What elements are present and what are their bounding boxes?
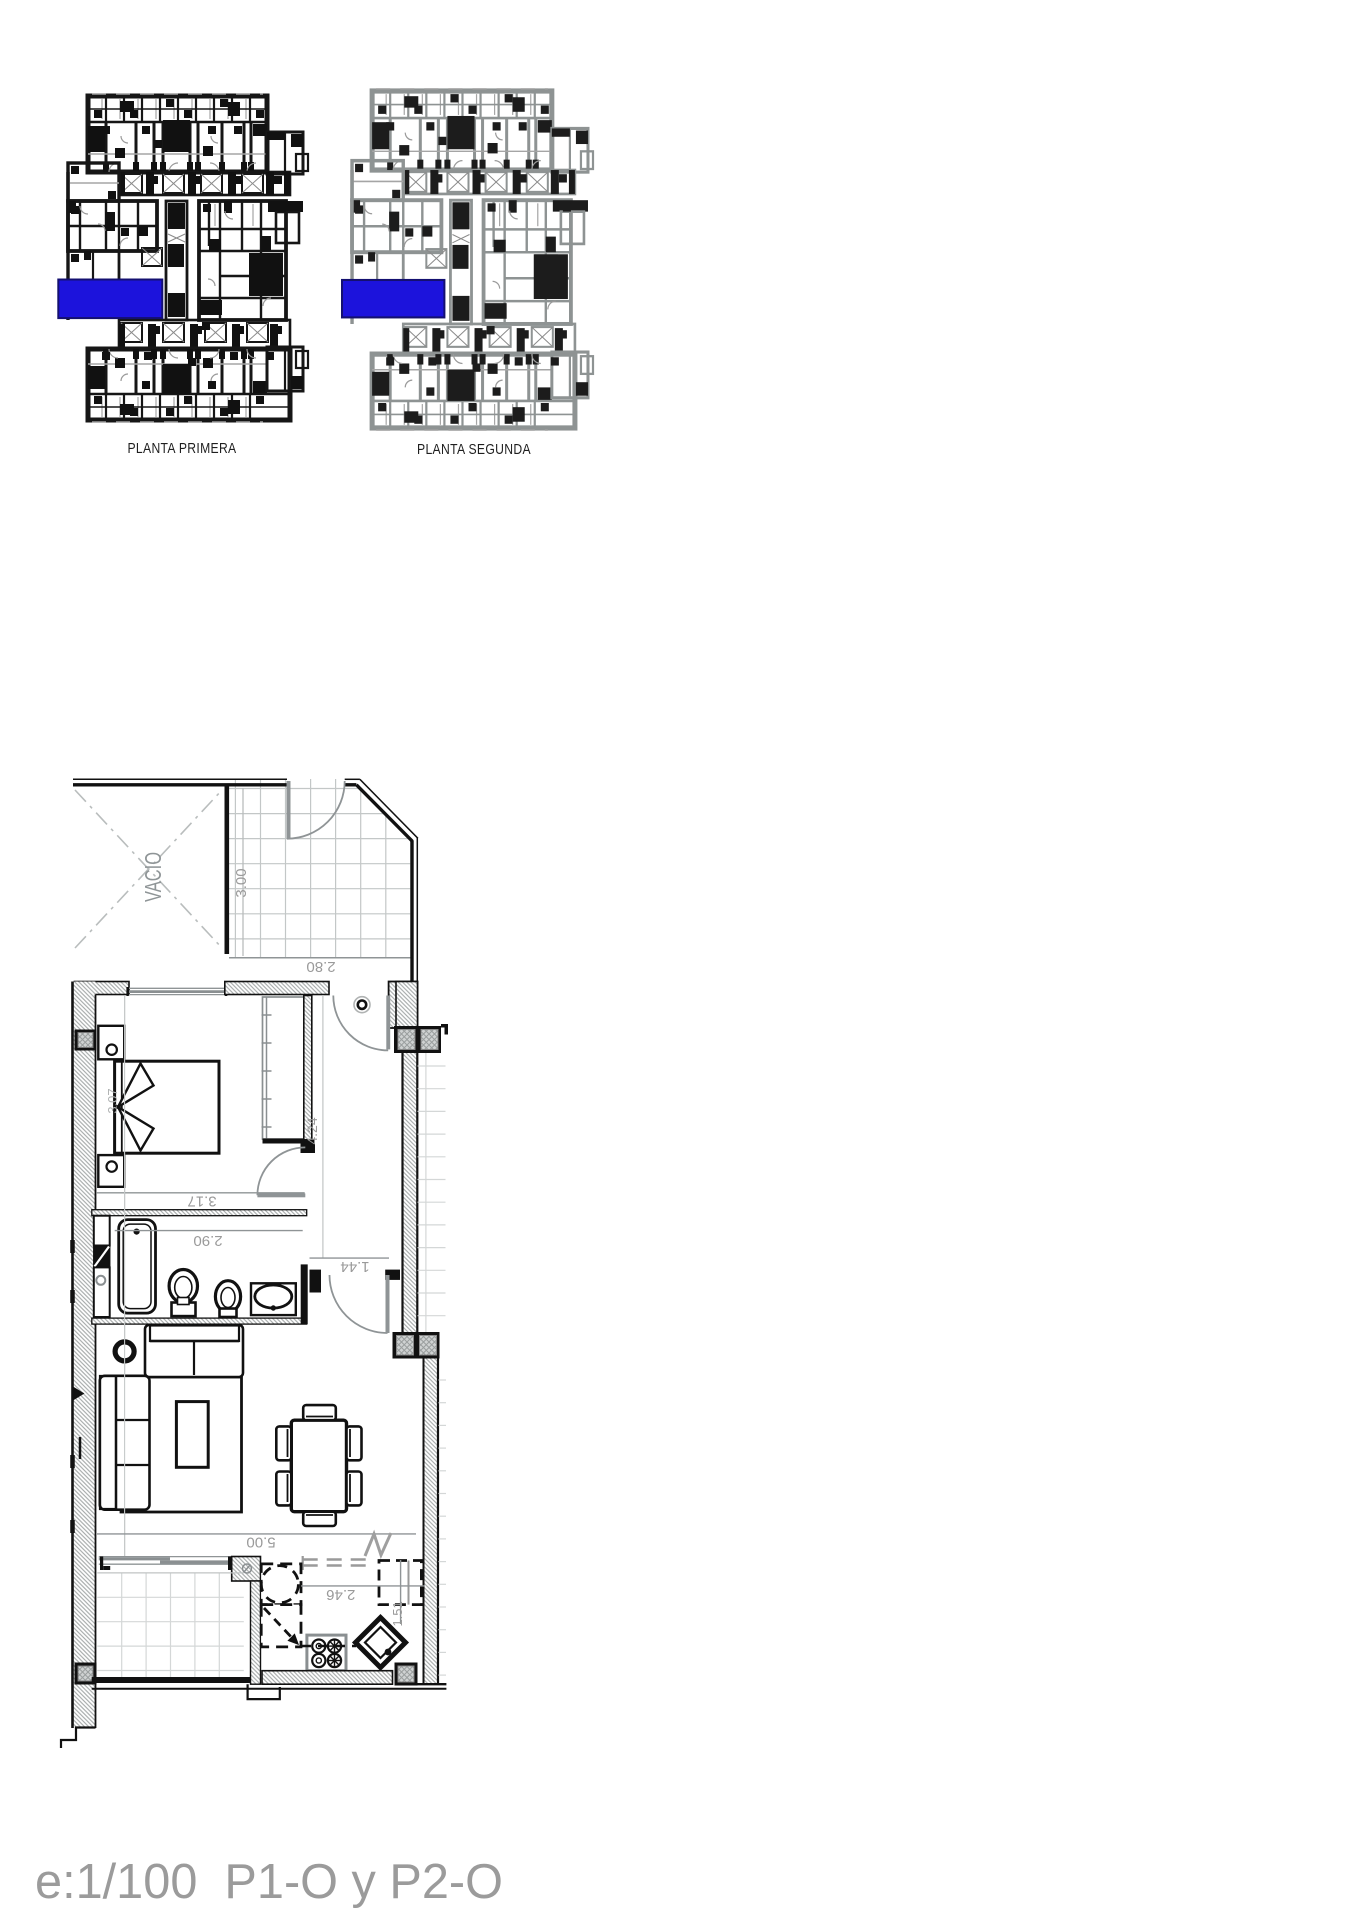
svg-text:PLANTA PRIMERA: PLANTA PRIMERA xyxy=(128,440,237,457)
svg-text:5.00: 5.00 xyxy=(246,1534,275,1551)
svg-text:2.90: 2.90 xyxy=(193,1232,222,1249)
svg-text:3.17: 3.17 xyxy=(187,1193,216,1210)
svg-text:2.80: 2.80 xyxy=(306,958,335,975)
svg-text:1.51: 1.51 xyxy=(390,1601,405,1626)
svg-text:3.07: 3.07 xyxy=(105,1088,120,1113)
svg-text:3.00: 3.00 xyxy=(233,868,250,897)
svg-text:e:1/100 P1-O y P2-O: e:1/100 P1-O y P2-O xyxy=(35,1855,503,1909)
svg-text:1.44: 1.44 xyxy=(340,1258,369,1275)
svg-text:PLANTA SEGUNDA: PLANTA SEGUNDA xyxy=(417,441,531,458)
svg-text:4.24: 4.24 xyxy=(304,1117,320,1144)
svg-text:VACIO: VACIO xyxy=(140,852,166,902)
svg-text:2.46: 2.46 xyxy=(326,1586,355,1603)
